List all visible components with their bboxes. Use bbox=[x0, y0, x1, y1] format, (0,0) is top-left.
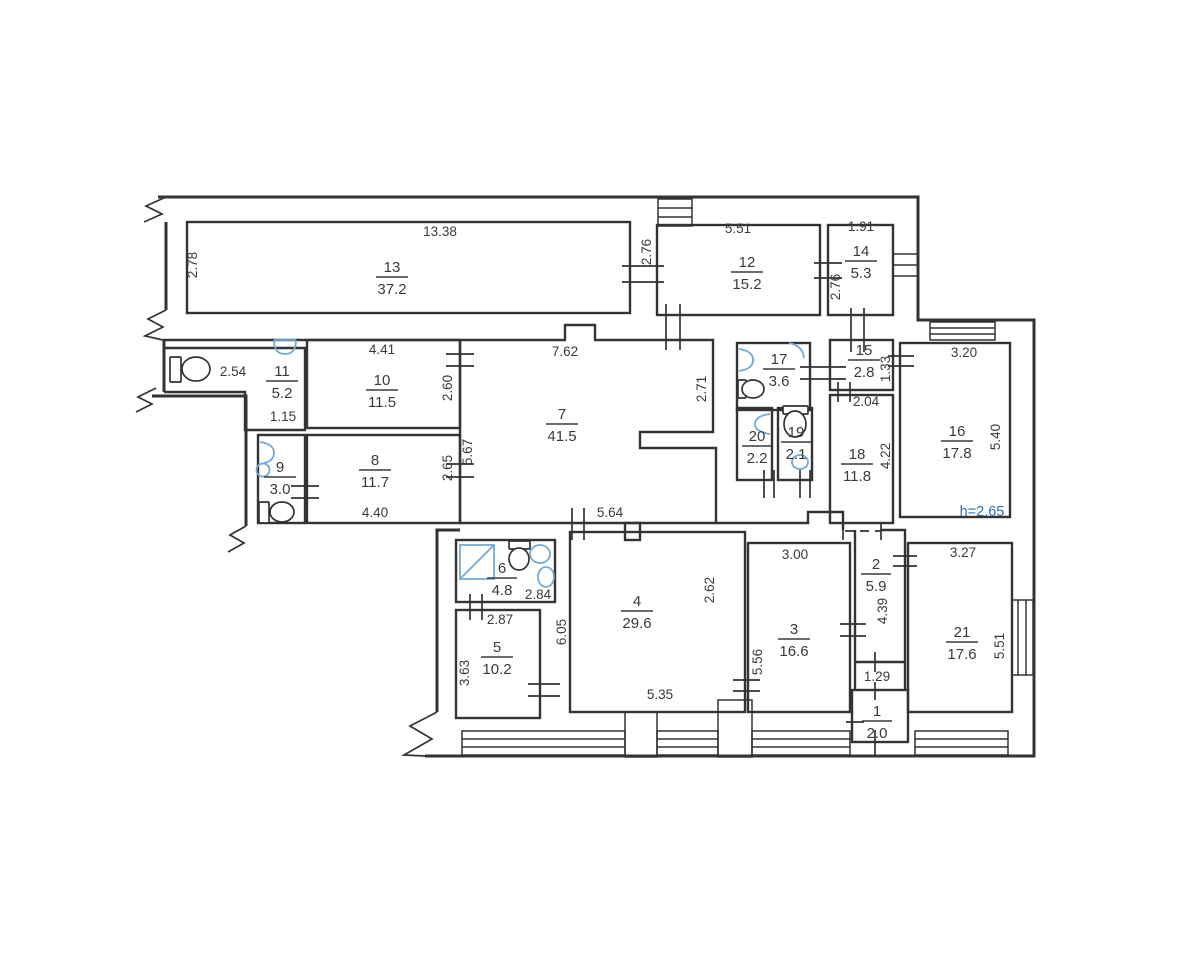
sink-icon-room6 bbox=[530, 545, 550, 563]
room-1-number: 1 bbox=[873, 703, 881, 720]
dim-room6-width: 2.84 bbox=[525, 587, 552, 602]
room-13-area: 37.2 bbox=[377, 281, 406, 298]
dim-room12-width: 5.51 bbox=[725, 221, 751, 236]
room-19-area: 2.1 bbox=[786, 446, 807, 463]
break-left-mid bbox=[145, 310, 166, 340]
dim-room16-width: 3.20 bbox=[951, 345, 977, 360]
room-3-number: 3 bbox=[790, 621, 798, 638]
dim-room21-height: 5.51 bbox=[992, 633, 1007, 659]
room-label-13: 1337.2 bbox=[376, 259, 408, 298]
room-label-9: 93.0 bbox=[264, 459, 296, 498]
door-5 bbox=[528, 684, 560, 696]
room-15-area: 2.8 bbox=[854, 364, 875, 381]
room-label-4: 429.6 bbox=[621, 593, 653, 632]
dim-room18-width: 2.04 bbox=[853, 394, 880, 409]
room-20-number: 20 bbox=[749, 428, 766, 445]
room-9-number: 9 bbox=[276, 459, 284, 476]
dim-room14-height: 2.76 bbox=[828, 274, 843, 300]
dim-room13-height: 2.78 bbox=[185, 252, 200, 278]
floor-plan-drawing: 1337.2 1215.2 145.3 115.2 1011.5 741.5 1… bbox=[0, 0, 1200, 976]
dim-room16-height: 5.40 bbox=[988, 424, 1003, 450]
room-17-number: 17 bbox=[771, 351, 788, 368]
shower-tray-icon-room6 bbox=[460, 545, 494, 579]
window-bottom-band-2 bbox=[657, 731, 718, 755]
sink-icon-room6-b bbox=[538, 567, 554, 587]
room-2-area: 5.9 bbox=[866, 578, 887, 595]
room-label-15: 152.8 bbox=[848, 342, 880, 381]
dim-room8-height: 2.65 bbox=[440, 455, 455, 481]
room-7-number: 7 bbox=[558, 406, 566, 423]
dim-room4-right: 2.62 bbox=[702, 577, 717, 603]
room-label-5: 510.2 bbox=[481, 639, 513, 678]
room-11-number: 11 bbox=[274, 363, 290, 380]
hall-wall-left bbox=[716, 512, 843, 530]
dim-room3-width: 3.00 bbox=[782, 547, 808, 562]
toilet-icon-room6 bbox=[509, 541, 530, 570]
room-8-number: 8 bbox=[371, 452, 379, 469]
room-14-area: 5.3 bbox=[851, 265, 872, 282]
room-6-area: 4.8 bbox=[492, 582, 513, 599]
door-19 bbox=[800, 470, 810, 498]
room-13-number: 13 bbox=[384, 259, 401, 276]
dim-room7-bottom: 5.64 bbox=[597, 505, 624, 520]
dim-room3-height: 5.56 bbox=[750, 649, 765, 675]
room-12-number: 12 bbox=[739, 254, 756, 271]
room-label-8: 811.7 bbox=[359, 452, 391, 491]
break-top-left bbox=[144, 197, 166, 222]
room-7-area: 41.5 bbox=[547, 428, 576, 445]
door-2-mid bbox=[840, 624, 866, 636]
room-17-area: 3.6 bbox=[769, 373, 790, 390]
break-bottom-left bbox=[404, 712, 437, 756]
room-label-17: 173.6 bbox=[763, 351, 795, 390]
break-left-bottom bbox=[228, 526, 246, 552]
door-15-18 bbox=[838, 382, 850, 402]
room-labels: 1337.2 1215.2 145.3 115.2 1011.5 741.5 1… bbox=[264, 243, 978, 742]
door-4-3 bbox=[733, 680, 760, 691]
window-right-of-room21 bbox=[1012, 600, 1033, 675]
room-label-11: 115.2 bbox=[266, 363, 298, 402]
dim-room10-height: 2.60 bbox=[440, 375, 455, 401]
window-stair-top bbox=[658, 199, 692, 226]
dim-room4-left: 6.05 bbox=[554, 619, 569, 645]
ceiling-height-note: h=2.65 bbox=[960, 504, 1005, 520]
corner-shower-icon-room17 bbox=[789, 343, 804, 358]
room-12-area: 15.2 bbox=[732, 276, 761, 293]
door-6-5 bbox=[470, 594, 482, 620]
door-17 bbox=[800, 367, 846, 379]
dim-room7-right: 2.71 bbox=[694, 376, 709, 402]
sink-icon-room17 bbox=[739, 349, 753, 371]
room-5-area: 10.2 bbox=[482, 661, 511, 678]
room-7-outline bbox=[460, 325, 716, 523]
window-bottom-band-4 bbox=[915, 731, 1008, 755]
plumbing-blue-icons bbox=[257, 340, 809, 587]
room-15-number: 15 bbox=[856, 342, 873, 359]
hall-wall-right bbox=[881, 530, 905, 543]
room-5-number: 5 bbox=[493, 639, 501, 656]
dim-room1-width: 1.29 bbox=[864, 669, 890, 684]
room-6-number: 6 bbox=[498, 560, 506, 577]
room-20-area: 2.2 bbox=[747, 450, 768, 467]
room-13-outline bbox=[187, 222, 630, 313]
dim-room11-width: 2.54 bbox=[220, 364, 247, 379]
room-14-number: 14 bbox=[853, 243, 870, 260]
sink-icon-room9 bbox=[260, 442, 274, 464]
room-16-number: 16 bbox=[949, 423, 966, 440]
room-label-21: 2117.6 bbox=[946, 624, 978, 663]
dim-room4-width: 5.35 bbox=[647, 687, 673, 702]
room-2-number: 2 bbox=[872, 556, 880, 573]
room-4-area: 29.6 bbox=[622, 615, 651, 632]
room-9-area: 3.0 bbox=[270, 481, 291, 498]
room-label-1: 12.0 bbox=[862, 703, 892, 742]
dimension-labels: 13.38 2.78 5.51 2.76 1.91 2.76 2.54 1.15… bbox=[185, 219, 1007, 702]
toilet-icon-room11 bbox=[170, 357, 210, 382]
toilet-icon-room9 bbox=[259, 502, 294, 523]
dim-room21-width: 3.27 bbox=[950, 545, 976, 560]
dim-room15-height: 1.33 bbox=[878, 356, 893, 382]
toilet-icon-room17 bbox=[738, 380, 764, 398]
window-right-of-room14 bbox=[893, 254, 918, 276]
dim-room12-height: 2.76 bbox=[639, 239, 654, 265]
dim-room13-width: 13.38 bbox=[423, 224, 457, 239]
dim-room2-height: 4.39 bbox=[875, 598, 890, 624]
room-label-7: 741.5 bbox=[546, 406, 578, 445]
room-11-area: 5.2 bbox=[272, 385, 293, 402]
room-4-number: 4 bbox=[633, 593, 641, 610]
room-8-area: 11.7 bbox=[361, 474, 389, 491]
dim-room11-bottom: 1.15 bbox=[270, 409, 296, 424]
room-4-outline bbox=[570, 532, 745, 712]
room-3-area: 16.6 bbox=[779, 643, 808, 660]
dim-room8-width: 4.40 bbox=[362, 505, 388, 520]
room-1-area: 2.0 bbox=[867, 725, 888, 742]
room-21-number: 21 bbox=[954, 624, 971, 641]
room-label-3: 316.6 bbox=[778, 621, 810, 660]
room-label-18: 1811.8 bbox=[841, 446, 873, 485]
dim-room5-height: 3.63 bbox=[457, 660, 472, 686]
room-label-14: 145.3 bbox=[845, 243, 877, 282]
room-19-number: 19 bbox=[788, 424, 805, 441]
window-bottom-band-3 bbox=[752, 731, 850, 755]
room-label-12: 1215.2 bbox=[731, 254, 763, 293]
dim-room5-width: 2.87 bbox=[487, 612, 513, 627]
door-12-7 bbox=[666, 304, 680, 350]
break-left-lower bbox=[136, 388, 156, 412]
room-10-area: 11.5 bbox=[368, 394, 396, 411]
room-18-area: 11.8 bbox=[843, 468, 871, 485]
bottom-pier-1 bbox=[625, 712, 657, 757]
room-label-16: 1617.8 bbox=[941, 423, 973, 462]
dim-room18-height: 4.22 bbox=[878, 443, 893, 469]
room-10-number: 10 bbox=[374, 372, 391, 389]
room-18-number: 18 bbox=[849, 446, 866, 463]
dim-room7-width: 7.62 bbox=[552, 344, 578, 359]
room-21-area: 17.6 bbox=[947, 646, 976, 663]
room-16-area: 17.8 bbox=[942, 445, 971, 462]
window-bottom-band-1 bbox=[462, 731, 625, 755]
room-label-10: 1011.5 bbox=[366, 372, 398, 411]
dim-room10-width: 4.41 bbox=[369, 342, 395, 357]
room-label-2: 25.9 bbox=[861, 556, 891, 595]
window-above-room16 bbox=[930, 322, 995, 340]
floor-plan-page: 1337.2 1215.2 145.3 115.2 1011.5 741.5 1… bbox=[0, 0, 1200, 976]
dim-room14-width: 1.91 bbox=[848, 219, 874, 234]
dim-room7-left: 5.67 bbox=[460, 439, 475, 465]
room-3-outline bbox=[748, 543, 850, 712]
